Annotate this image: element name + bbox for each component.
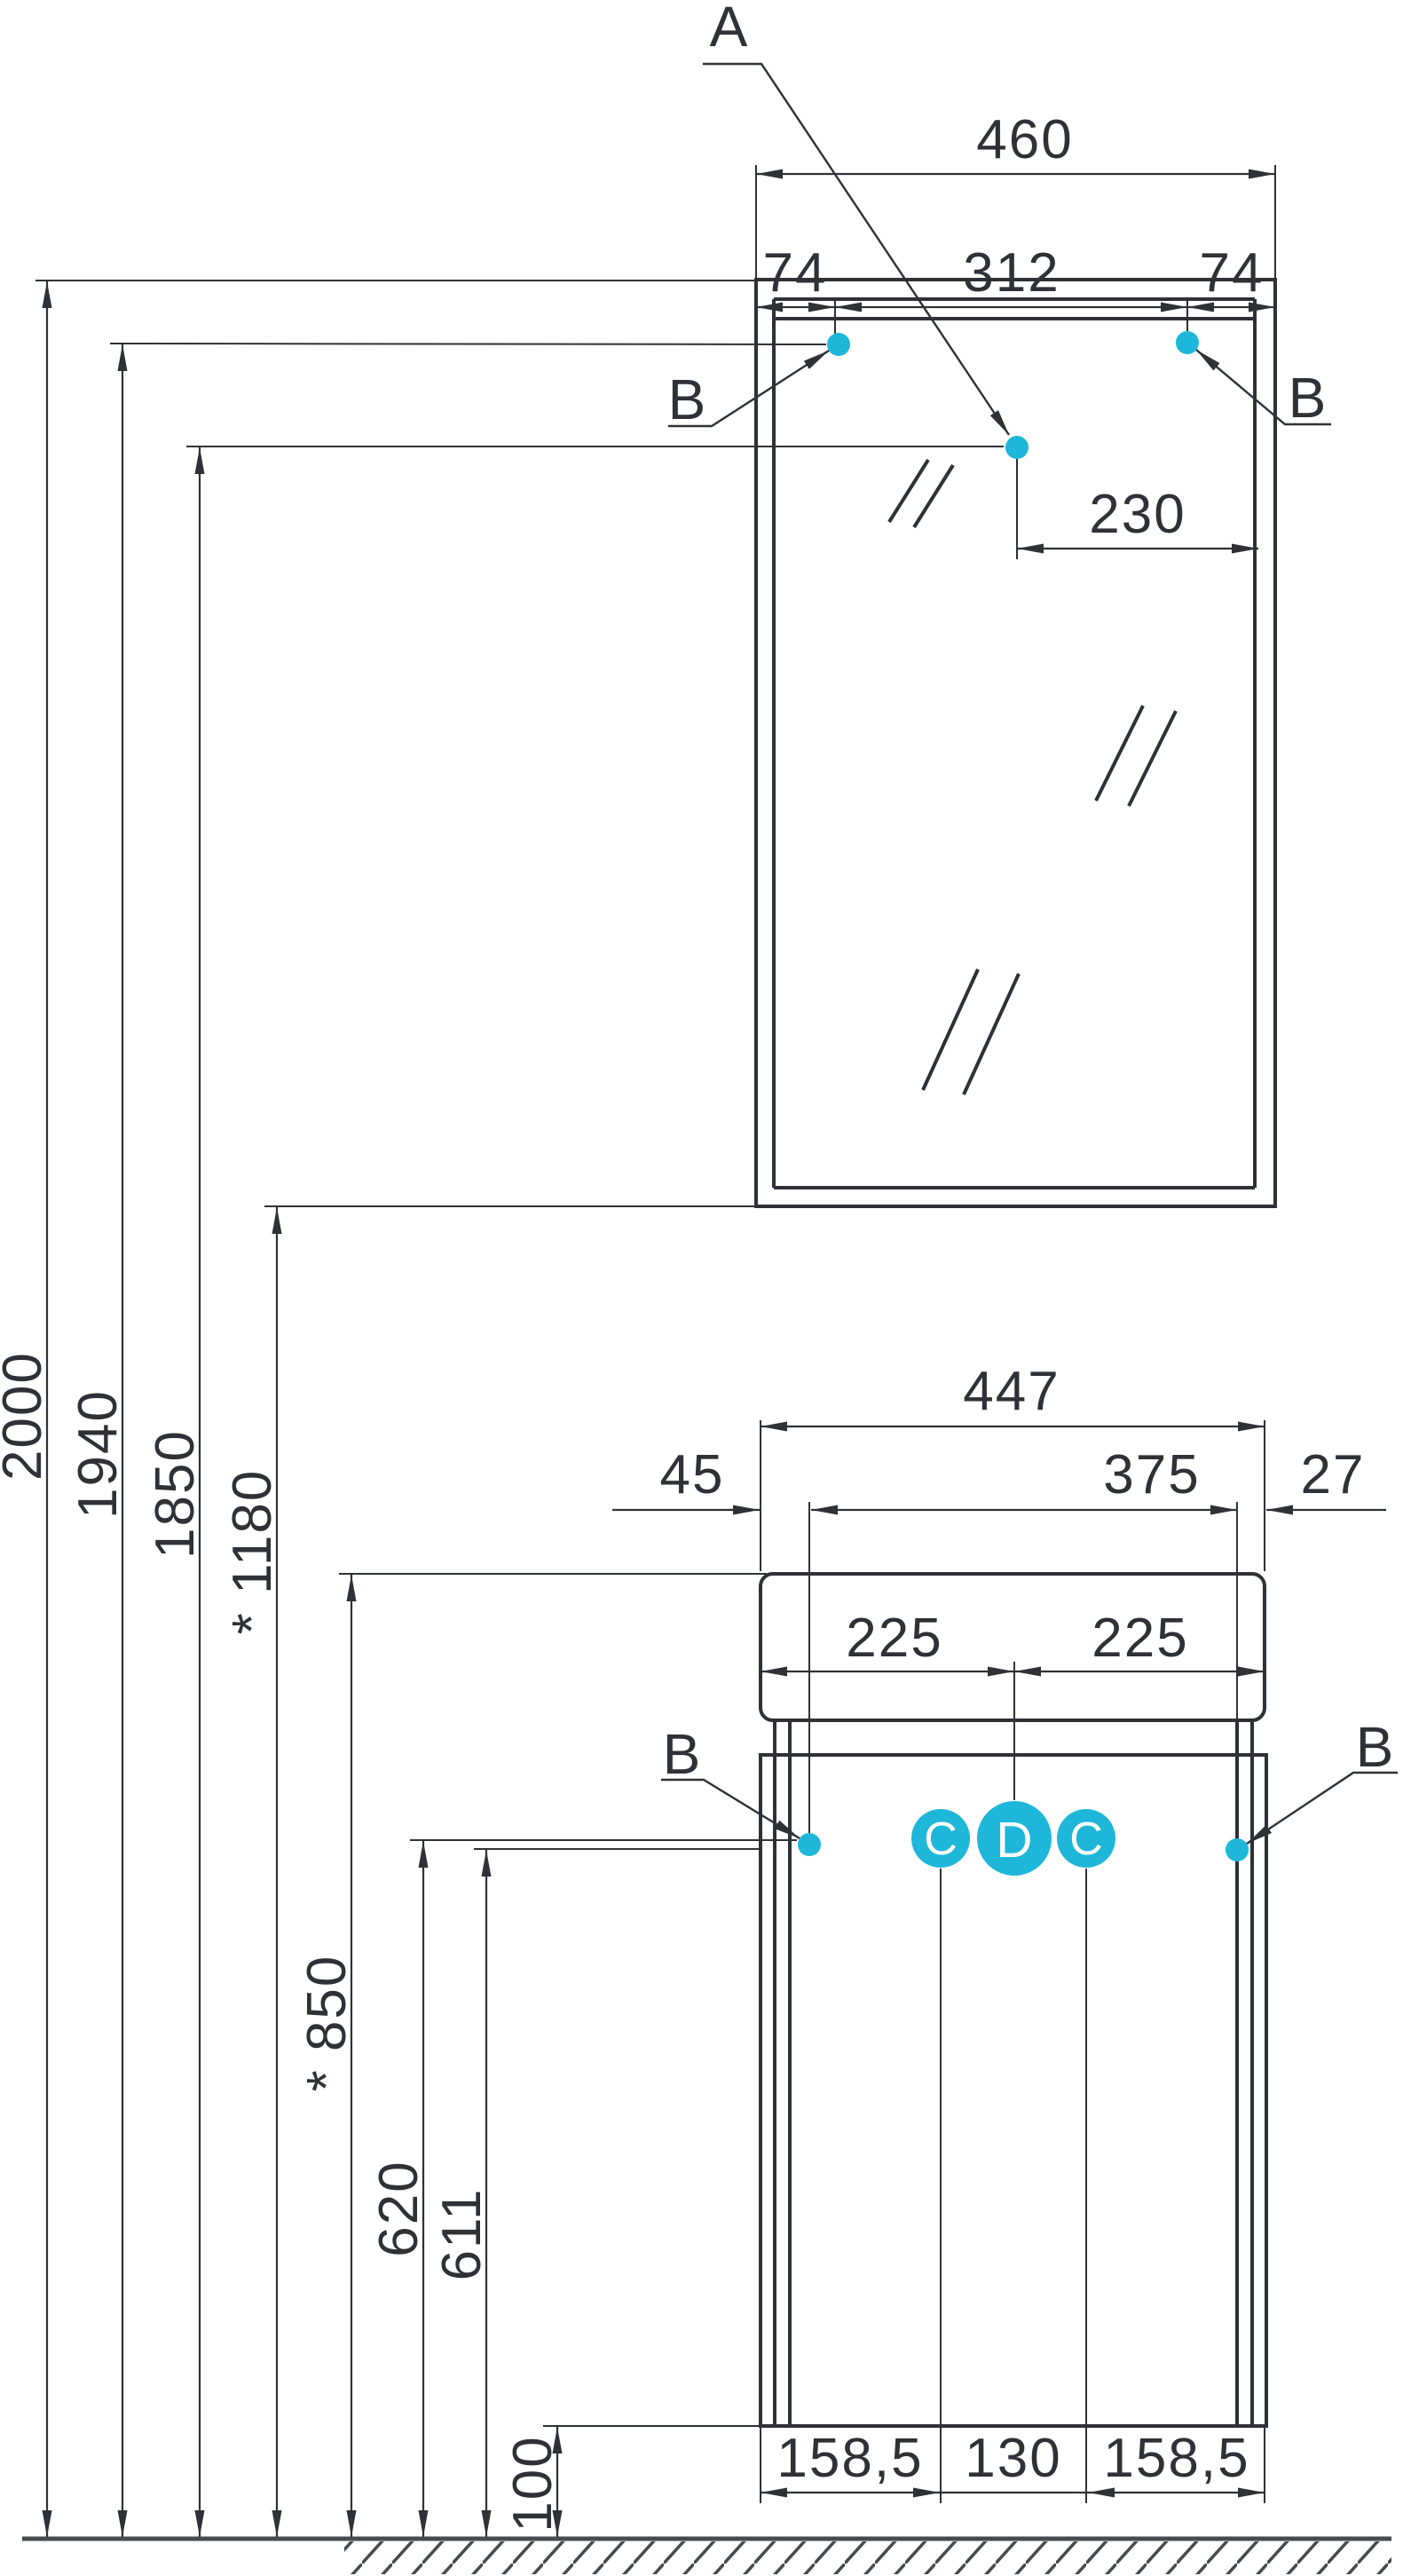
- glass-mark: [1096, 706, 1143, 801]
- hole-marker-vanity-right: [1226, 1838, 1249, 1861]
- callout-text-b-mirror-left: B: [668, 367, 708, 431]
- installation-diagram: 460 74 312 74 230 A B B B B 447 45 375 2…: [0, 0, 1403, 2576]
- dim-text-620: 620: [368, 2160, 430, 2256]
- dim-text-130: 130: [965, 2428, 1061, 2489]
- dim-text-2000: 2000: [0, 1351, 53, 1481]
- mirror-glass-marks: [889, 460, 1176, 1094]
- hole-marker-mirror-right: [1176, 331, 1199, 354]
- dim-text-460: 460: [976, 109, 1073, 170]
- dim-text-1180: * 1180: [222, 1469, 283, 1635]
- callout-text-b-mirror-right: B: [1289, 366, 1328, 430]
- floor-hatching: [344, 2541, 1391, 2574]
- mirror-cabinet-body: [756, 280, 1275, 1206]
- dim-text-375: 375: [1103, 1444, 1200, 1505]
- glass-mark: [923, 969, 978, 1090]
- vertical-dimension-texts: 2000 1940 1850 * 1180 * 850 620 611 100: [0, 1351, 564, 2533]
- dim-text-447: 447: [963, 1361, 1060, 1422]
- dim-text-74-left: 74: [763, 242, 828, 304]
- glass-mark: [1129, 711, 1176, 806]
- callout-text-b-vanity-right: B: [1356, 1715, 1396, 1779]
- dim-text-1940: 1940: [67, 1389, 129, 1519]
- dim-text-230: 230: [1089, 484, 1186, 545]
- glass-mark: [964, 974, 1019, 1094]
- badge-text-d: D: [996, 1812, 1032, 1869]
- dimension-texts: 460 74 312 74 230 A B B B B 447 45 375 2…: [660, 0, 1396, 2489]
- hole-marker-vanity-left: [798, 1833, 821, 1856]
- dim-text-158-right: 158,5: [1103, 2428, 1249, 2489]
- dim-text-158-left: 158,5: [776, 2428, 923, 2489]
- dim-text-27: 27: [1301, 1444, 1366, 1505]
- dim-text-225-right: 225: [1092, 1608, 1188, 1669]
- dim-text-225-left: 225: [846, 1608, 942, 1669]
- callout-leaders: [661, 64, 1398, 1844]
- dim-text-100: 100: [502, 2435, 564, 2532]
- hole-marker-mirror-left: [827, 333, 850, 356]
- callout-text-b-vanity-left: B: [663, 1722, 703, 1786]
- dim-text-850: * 850: [296, 1955, 358, 2092]
- dim-text-611: 611: [431, 2188, 493, 2281]
- dim-text-45: 45: [660, 1444, 725, 1505]
- callout-text-a: A: [710, 0, 750, 59]
- leader-b-vanity-left: [661, 1780, 800, 1838]
- badge-text-c-right: C: [1069, 1813, 1103, 1865]
- floor: [22, 2539, 1391, 2574]
- dim-text-1850: 1850: [145, 1429, 206, 1559]
- dim-text-312: 312: [963, 242, 1060, 304]
- badge-text-c-left: C: [924, 1813, 958, 1865]
- technical-drawing-page: 460 74 312 74 230 A B B B B 447 45 375 2…: [0, 0, 1403, 2576]
- mirror-cabinet-outline: [756, 280, 1275, 1206]
- hole-marker-mirror-center: [1005, 436, 1029, 459]
- washbasin: [761, 1574, 1265, 1720]
- leader-b-vanity-right: [1247, 1773, 1398, 1844]
- dim-text-74-right: 74: [1200, 242, 1265, 304]
